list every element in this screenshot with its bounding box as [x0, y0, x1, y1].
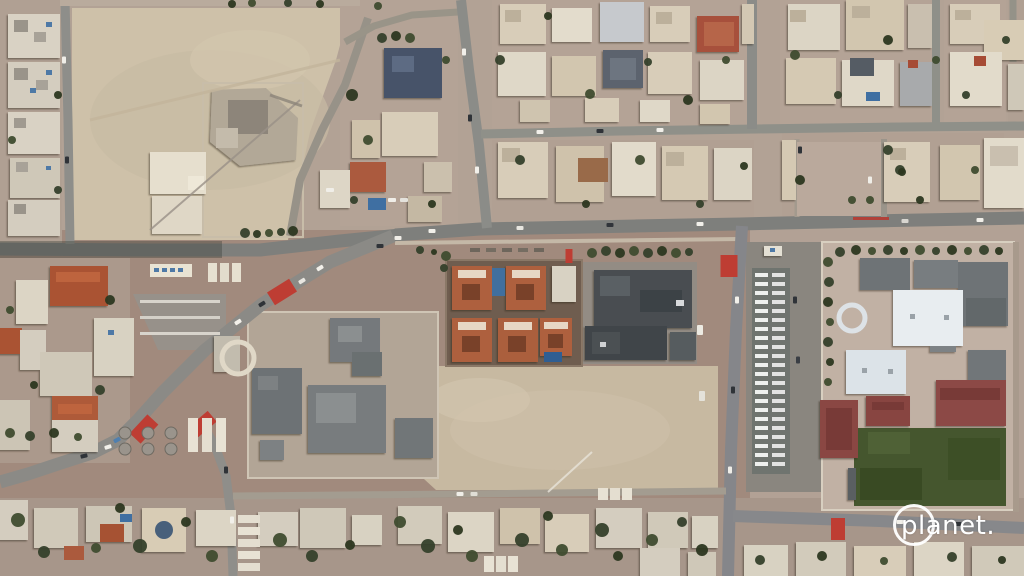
- tree: [316, 0, 324, 8]
- shed-rib: [772, 300, 785, 304]
- shed-rib: [755, 390, 768, 394]
- building-detail: [826, 408, 852, 450]
- building-detail: [188, 418, 198, 452]
- sand-patch: [430, 378, 530, 422]
- building-detail: [36, 80, 48, 90]
- building: [914, 260, 958, 288]
- shed-rib: [772, 444, 785, 448]
- vehicle: [607, 223, 614, 227]
- building: [900, 62, 932, 106]
- tree: [11, 513, 25, 527]
- tree: [826, 358, 834, 366]
- tree: [947, 552, 957, 562]
- shed-rib: [772, 273, 785, 277]
- tree: [346, 89, 358, 101]
- building-detail: [238, 563, 260, 571]
- building-detail: [108, 330, 114, 335]
- tree: [601, 246, 611, 256]
- tree: [613, 551, 623, 561]
- tree: [1002, 36, 1010, 44]
- shed-rib: [755, 309, 768, 313]
- vehicle: [735, 297, 739, 304]
- building: [714, 148, 752, 200]
- tree: [442, 56, 450, 64]
- round-feature: [142, 427, 154, 439]
- building: [552, 8, 592, 42]
- building-detail: [14, 118, 26, 128]
- building-detail: [46, 70, 52, 75]
- tree: [428, 200, 436, 208]
- vehicle: [955, 522, 962, 526]
- building-detail: [232, 263, 241, 282]
- tree: [826, 318, 834, 326]
- building-detail: [600, 276, 630, 296]
- building: [692, 516, 718, 548]
- vehicle: [697, 222, 704, 226]
- round-feature: [119, 427, 131, 439]
- building: [848, 468, 856, 500]
- building-detail: [58, 404, 92, 414]
- building-detail: [610, 488, 620, 500]
- building-detail: [948, 438, 1000, 480]
- building: [908, 4, 932, 48]
- building-detail: [505, 10, 521, 22]
- shed-rib: [772, 462, 785, 466]
- building-detail: [178, 268, 183, 272]
- tree: [421, 539, 435, 553]
- tree: [495, 55, 505, 65]
- building-detail: [462, 336, 480, 352]
- tree: [265, 229, 273, 237]
- tree: [595, 523, 609, 537]
- tree: [253, 230, 261, 238]
- building: [786, 58, 836, 104]
- tree: [49, 428, 59, 438]
- tree: [394, 516, 406, 528]
- tree: [466, 550, 478, 562]
- vehicle: [793, 297, 797, 304]
- vehicle: [798, 147, 802, 154]
- building-detail: [544, 352, 562, 362]
- satellite-image: [0, 0, 1024, 576]
- building: [382, 112, 438, 156]
- tree: [240, 228, 250, 238]
- vehicle: [395, 236, 402, 240]
- shed-rib: [755, 300, 768, 304]
- building-detail: [512, 270, 540, 278]
- tree: [979, 245, 989, 255]
- building-detail: [216, 128, 238, 148]
- shed-rib: [772, 408, 785, 412]
- tree: [206, 550, 218, 562]
- building: [846, 350, 906, 394]
- road: [65, 0, 70, 244]
- building-detail: [120, 514, 132, 522]
- red-road-marking: [566, 249, 573, 263]
- building: [966, 298, 1006, 326]
- tree: [405, 33, 415, 43]
- tree: [105, 295, 115, 305]
- building-detail: [610, 58, 636, 80]
- building: [188, 176, 204, 190]
- tree: [582, 200, 590, 208]
- shed-rib: [755, 354, 768, 358]
- building-detail: [220, 263, 229, 282]
- tree: [391, 31, 401, 41]
- tree: [790, 50, 800, 60]
- vehicle: [377, 244, 384, 248]
- tree: [900, 247, 908, 255]
- building-detail: [238, 515, 260, 523]
- tree: [133, 539, 147, 553]
- building-detail: [598, 488, 608, 500]
- tree: [883, 35, 893, 45]
- vehicle: [471, 492, 478, 496]
- building: [352, 352, 382, 376]
- building: [585, 98, 619, 122]
- shed-rib: [772, 354, 785, 358]
- tree: [38, 546, 50, 558]
- vehicle: [657, 128, 664, 132]
- tree: [795, 175, 805, 185]
- building-detail: [622, 488, 632, 500]
- tree: [273, 533, 287, 547]
- building: [300, 508, 346, 548]
- vehicle: [977, 218, 984, 222]
- building: [742, 4, 754, 44]
- tree: [350, 196, 358, 204]
- building: [16, 280, 48, 324]
- building-detail: [656, 12, 672, 24]
- building-detail: [462, 284, 480, 300]
- building-detail: [578, 158, 608, 182]
- tree: [8, 136, 16, 144]
- tree: [916, 196, 924, 204]
- building-detail: [14, 204, 26, 214]
- building: [700, 60, 744, 100]
- building-detail: [484, 556, 494, 572]
- road-shadow: [0, 241, 222, 258]
- tree: [671, 248, 681, 258]
- round-feature: [165, 443, 177, 455]
- tree: [515, 533, 529, 547]
- building: [893, 290, 963, 346]
- shed-rib: [755, 426, 768, 430]
- shed-rib: [755, 336, 768, 340]
- vehicle: [517, 226, 524, 230]
- shed-rib: [755, 327, 768, 331]
- vehicle: [728, 467, 732, 474]
- tree: [998, 556, 1006, 564]
- building-detail: [140, 316, 220, 319]
- building: [408, 196, 442, 222]
- tree: [95, 385, 105, 395]
- vehicle: [796, 357, 800, 364]
- building-detail: [170, 268, 175, 272]
- shed-rib: [772, 282, 785, 286]
- shed-rib: [772, 372, 785, 376]
- shed-rib: [755, 453, 768, 457]
- shed-rib: [755, 345, 768, 349]
- tree: [30, 381, 38, 389]
- building: [545, 514, 589, 552]
- building-detail: [56, 272, 100, 282]
- vehicle: [457, 492, 464, 496]
- tree: [657, 246, 667, 256]
- tree: [851, 245, 861, 255]
- shed-rib: [755, 282, 768, 286]
- building-detail: [202, 418, 212, 452]
- building: [498, 52, 546, 96]
- shed-rib: [772, 327, 785, 331]
- vehicle: [731, 387, 735, 394]
- tree: [685, 248, 693, 256]
- building: [152, 196, 202, 234]
- tree: [74, 433, 82, 441]
- building-detail: [338, 326, 362, 342]
- red-road-marking: [831, 518, 845, 540]
- building: [782, 140, 796, 200]
- building-detail: [518, 248, 528, 252]
- tree: [374, 2, 382, 10]
- tree: [824, 277, 834, 287]
- tree: [635, 155, 645, 165]
- building: [384, 48, 442, 98]
- shed-rib: [755, 363, 768, 367]
- building-detail: [458, 322, 486, 330]
- tree: [5, 428, 15, 438]
- building-detail: [162, 268, 167, 272]
- building-detail: [368, 198, 386, 210]
- shed-rib: [772, 291, 785, 295]
- building: [0, 400, 30, 450]
- tree: [740, 162, 748, 170]
- building-detail: [860, 468, 922, 500]
- building: [40, 352, 92, 396]
- building: [600, 2, 644, 42]
- building: [936, 380, 1006, 426]
- building: [520, 100, 550, 122]
- tree: [932, 247, 940, 255]
- vehicle: [597, 129, 604, 133]
- tree: [629, 246, 639, 256]
- tree: [440, 264, 448, 272]
- building-detail: [908, 60, 918, 68]
- building-detail: [990, 146, 1018, 166]
- building-detail: [100, 524, 124, 542]
- tree: [696, 544, 708, 556]
- building-detail: [940, 388, 1000, 400]
- building-detail: [316, 393, 356, 423]
- shed-rib: [755, 399, 768, 403]
- shed-rib: [755, 462, 768, 466]
- building-detail: [30, 88, 36, 93]
- building-detail: [140, 300, 220, 303]
- building-detail: [944, 315, 949, 320]
- building: [0, 328, 22, 354]
- building: [196, 510, 236, 546]
- tree: [947, 245, 957, 255]
- building-detail: [34, 32, 46, 42]
- tree: [823, 337, 833, 347]
- tree: [883, 245, 893, 255]
- building-detail: [852, 6, 870, 18]
- vehicle: [462, 49, 466, 56]
- building-detail: [64, 546, 84, 560]
- building-detail: [508, 556, 518, 572]
- building-detail: [862, 368, 867, 373]
- shed-rib: [772, 318, 785, 322]
- shed-roof: [752, 268, 790, 474]
- red-road-marking: [721, 255, 738, 277]
- building: [612, 142, 656, 196]
- building-detail: [470, 248, 480, 252]
- tree: [431, 249, 437, 255]
- building: [260, 440, 284, 460]
- building: [640, 548, 680, 576]
- tree: [683, 95, 693, 105]
- tree: [848, 196, 856, 204]
- tree: [644, 58, 652, 66]
- building-detail: [238, 527, 260, 535]
- building: [640, 100, 670, 122]
- round-feature: [119, 443, 131, 455]
- building-detail: [872, 402, 904, 410]
- vehicle: [699, 391, 705, 401]
- tree: [181, 517, 191, 527]
- shed-rib: [755, 273, 768, 277]
- tree: [643, 248, 653, 258]
- building-detail: [502, 248, 512, 252]
- tree: [543, 511, 553, 521]
- building: [350, 162, 386, 192]
- shed-rib: [755, 444, 768, 448]
- tree: [615, 248, 625, 258]
- building: [648, 52, 692, 94]
- tree: [722, 56, 730, 64]
- tree: [995, 247, 1003, 255]
- building-detail: [888, 369, 893, 374]
- building-detail: [486, 248, 496, 252]
- building: [744, 545, 788, 576]
- building-detail: [16, 162, 28, 172]
- building-detail: [392, 56, 414, 72]
- tree: [288, 226, 298, 236]
- satellite-viewport: planet.: [0, 0, 1024, 576]
- tree: [91, 543, 101, 553]
- shed-rib: [772, 435, 785, 439]
- shed-rib: [772, 309, 785, 313]
- shed-rib: [772, 381, 785, 385]
- tree: [377, 33, 387, 43]
- vehicle: [475, 167, 479, 174]
- vehicle: [868, 177, 872, 184]
- tree: [363, 135, 373, 145]
- building-detail: [676, 300, 684, 306]
- tree: [345, 540, 355, 550]
- building: [34, 508, 78, 548]
- tree: [866, 196, 874, 204]
- shed-rib: [755, 417, 768, 421]
- building-detail: [666, 152, 684, 166]
- tree: [54, 91, 62, 99]
- tree: [696, 200, 704, 208]
- building-detail: [974, 56, 986, 66]
- tree: [898, 168, 906, 176]
- shed-rib: [772, 363, 785, 367]
- shed-rib: [772, 453, 785, 457]
- tree: [544, 12, 552, 20]
- vehicle: [388, 198, 396, 202]
- building-detail: [508, 336, 526, 352]
- round-feature: [155, 521, 173, 539]
- building-detail: [208, 263, 217, 282]
- building: [424, 162, 452, 192]
- shed-rib: [772, 345, 785, 349]
- tree: [755, 555, 765, 565]
- shed-rib: [755, 435, 768, 439]
- building-detail: [868, 432, 910, 454]
- building: [700, 104, 730, 124]
- building-detail: [770, 248, 775, 252]
- building-detail: [850, 58, 874, 76]
- shed-rib: [772, 390, 785, 394]
- tree: [228, 0, 236, 8]
- tree: [585, 89, 595, 99]
- building-detail: [496, 556, 506, 572]
- tree: [416, 246, 424, 254]
- building-detail: [544, 322, 568, 329]
- building: [352, 515, 382, 545]
- tree: [962, 91, 970, 99]
- building: [94, 318, 134, 376]
- round-feature: [165, 427, 177, 439]
- tree: [677, 517, 687, 527]
- building-detail: [534, 248, 544, 252]
- shed-rib: [772, 399, 785, 403]
- building-detail: [516, 284, 534, 300]
- building-detail: [504, 322, 532, 330]
- tree: [25, 431, 35, 441]
- building-detail: [640, 290, 682, 312]
- shed-rib: [772, 417, 785, 421]
- building-detail: [492, 268, 505, 296]
- tree: [817, 551, 827, 561]
- tree: [964, 247, 972, 255]
- tree: [556, 544, 568, 556]
- tree: [835, 247, 845, 257]
- building-detail: [910, 314, 915, 319]
- building-detail: [154, 268, 159, 272]
- building-detail: [704, 22, 734, 46]
- shed-rib: [755, 372, 768, 376]
- tree: [453, 525, 463, 535]
- tree: [868, 247, 876, 255]
- vehicle: [897, 520, 904, 524]
- vehicle: [62, 57, 66, 64]
- building-detail: [14, 20, 28, 32]
- building-detail: [600, 342, 606, 347]
- tree: [115, 503, 125, 513]
- tree: [883, 145, 893, 155]
- vehicle: [230, 517, 234, 524]
- building-detail: [140, 332, 220, 335]
- tree: [441, 251, 451, 261]
- shed-rib: [755, 291, 768, 295]
- building: [968, 350, 1006, 380]
- building-detail: [46, 22, 52, 27]
- building: [670, 332, 696, 360]
